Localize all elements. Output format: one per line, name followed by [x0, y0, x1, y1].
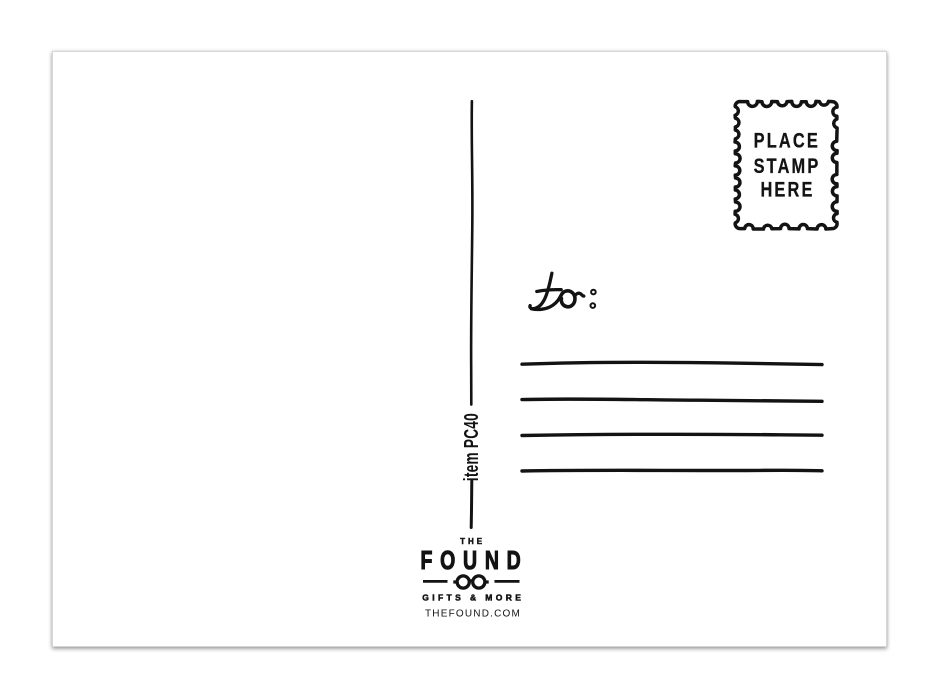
svg-text:THEFOUND.COM: THEFOUND.COM: [425, 609, 521, 620]
svg-text:HERE: HERE: [760, 177, 814, 200]
svg-text:FOUND: FOUND: [421, 545, 529, 574]
svg-text:STAMP: STAMP: [754, 154, 821, 177]
svg-text:PLACE: PLACE: [754, 128, 820, 151]
svg-text:item PC40: item PC40: [459, 413, 482, 481]
svg-text:GIFTS & MORE: GIFTS & MORE: [422, 593, 524, 603]
